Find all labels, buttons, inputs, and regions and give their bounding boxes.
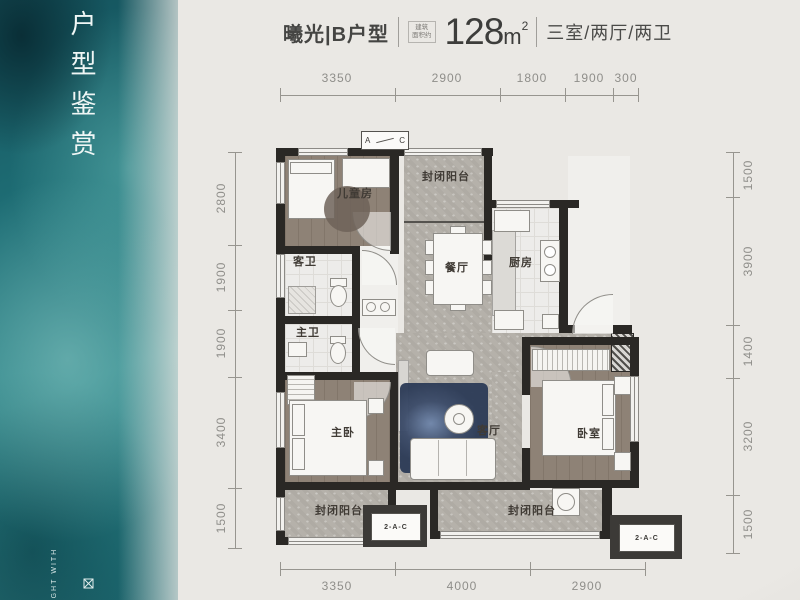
section-marker-top: A C bbox=[361, 131, 409, 150]
tick bbox=[395, 562, 396, 576]
area-note-line-1: 建筑 bbox=[412, 24, 432, 32]
dim-bottom-2: 4000 bbox=[447, 579, 478, 593]
toilet bbox=[330, 285, 347, 307]
pillow bbox=[292, 404, 305, 436]
dimension-line-top bbox=[280, 95, 638, 96]
room-label-living: 客厅 bbox=[477, 422, 501, 438]
room-label-master-bath: 主卫 bbox=[296, 324, 320, 340]
nightstand bbox=[614, 376, 631, 395]
dim-right-2: 3900 bbox=[741, 246, 755, 277]
header: 曦光|B户型 建筑 面积约 128 m 2 三室/两厅/两卫 bbox=[283, 8, 672, 56]
dim-right-4: 3200 bbox=[741, 421, 755, 452]
window bbox=[630, 376, 639, 442]
window bbox=[276, 162, 285, 204]
kitchen-sink bbox=[494, 210, 530, 232]
dimension-line-right bbox=[733, 152, 734, 553]
wall bbox=[390, 156, 399, 254]
nightstand bbox=[614, 452, 631, 471]
wall bbox=[352, 246, 360, 372]
tick bbox=[228, 548, 242, 549]
dim-top-2: 2900 bbox=[432, 71, 463, 85]
tick bbox=[726, 378, 740, 379]
plan-name: 曦光|B户型 bbox=[283, 18, 389, 47]
room-label-balcony-top: 封闭阳台 bbox=[422, 168, 470, 184]
tick bbox=[228, 377, 242, 378]
tick bbox=[280, 88, 281, 102]
wall bbox=[396, 482, 530, 490]
sidebar-footer-line-1: WITH bbox=[51, 548, 58, 574]
tick bbox=[500, 88, 501, 102]
tick bbox=[638, 88, 639, 102]
tick bbox=[228, 310, 242, 311]
floorplan-page: 户型鉴赏 LIGHT WITH 曦光|B户型 建筑 面积约 128 m 2 三室… bbox=[0, 0, 800, 600]
dimension-line-bottom bbox=[280, 569, 645, 570]
area-unit-sup: 2 bbox=[522, 19, 528, 33]
dim-bottom-3: 2900 bbox=[572, 579, 603, 593]
dim-top-3: 1800 bbox=[517, 71, 548, 85]
pillow bbox=[602, 384, 614, 416]
section-marker-bottom-right-label: 2-A-C bbox=[619, 524, 675, 552]
shower-tray bbox=[288, 286, 316, 314]
basin bbox=[380, 302, 390, 312]
area-figure: 128 m 2 bbox=[445, 11, 528, 53]
tick bbox=[565, 88, 566, 102]
nightstand bbox=[368, 398, 384, 414]
room-label-children: 儿童房 bbox=[337, 185, 373, 201]
room-label-kitchen: 厨房 bbox=[509, 254, 533, 270]
tick bbox=[280, 562, 281, 576]
window bbox=[298, 148, 348, 156]
wall bbox=[484, 208, 492, 264]
nightstand bbox=[368, 460, 384, 476]
tick bbox=[645, 562, 646, 576]
tick bbox=[228, 245, 242, 246]
room-label-guest-bath: 客卫 bbox=[293, 253, 317, 269]
tick bbox=[726, 553, 740, 554]
room-label-dining: 餐厅 bbox=[445, 259, 469, 275]
washing-machine-drum bbox=[557, 493, 575, 511]
desk bbox=[342, 158, 390, 188]
dim-top-1: 3350 bbox=[322, 71, 353, 85]
room-label-balcony-br: 封闭阳台 bbox=[508, 502, 556, 518]
dim-left-3: 1900 bbox=[214, 328, 228, 359]
dim-top-4: 1900 bbox=[574, 71, 605, 85]
tick bbox=[613, 88, 614, 102]
armchair bbox=[426, 350, 474, 376]
section-marker-top-c: C bbox=[399, 136, 405, 145]
dim-bottom-1: 3350 bbox=[322, 579, 353, 593]
window bbox=[276, 254, 285, 298]
dim-left-5: 1500 bbox=[214, 503, 228, 534]
window bbox=[276, 497, 285, 531]
washbasin bbox=[288, 342, 307, 357]
boxed-x-icon bbox=[83, 578, 94, 589]
wall bbox=[522, 480, 639, 488]
room-label-master-bed: 主卧 bbox=[331, 424, 355, 440]
wall bbox=[285, 316, 352, 324]
wall bbox=[613, 325, 632, 333]
room-label-bedroom2: 卧室 bbox=[577, 425, 601, 441]
section-marker-line bbox=[376, 138, 394, 143]
tick bbox=[228, 488, 242, 489]
area-note-box: 建筑 面积约 bbox=[408, 21, 436, 44]
tick bbox=[726, 152, 740, 153]
sofa-cushion-line bbox=[438, 440, 439, 476]
sliding-door-line bbox=[404, 221, 484, 223]
pillow bbox=[290, 162, 332, 174]
area-value: 128 bbox=[445, 11, 504, 53]
dim-right-3: 1400 bbox=[741, 336, 755, 367]
wall bbox=[522, 337, 639, 345]
dim-left-1: 2800 bbox=[214, 183, 228, 214]
area-note-line-2: 面积约 bbox=[412, 32, 432, 40]
sofa-cushion-line bbox=[466, 440, 467, 476]
tick bbox=[726, 495, 740, 496]
tick bbox=[228, 152, 242, 153]
tick bbox=[726, 197, 740, 198]
header-divider bbox=[536, 17, 537, 47]
dim-right-1: 1500 bbox=[741, 160, 755, 191]
basin bbox=[366, 302, 376, 312]
pillow bbox=[602, 418, 614, 450]
sidebar-footer-line-2: LIGHT bbox=[51, 578, 58, 600]
sidebar-vertical-title: 户型鉴赏 bbox=[64, 10, 101, 170]
wardrobe bbox=[532, 349, 610, 371]
wall bbox=[276, 482, 398, 490]
dim-left-4: 3400 bbox=[214, 417, 228, 448]
pillow bbox=[292, 438, 305, 470]
tick bbox=[530, 562, 531, 576]
area-unit: m bbox=[503, 24, 521, 50]
wall bbox=[390, 380, 398, 490]
layout-text: 三室/两厅/两卫 bbox=[546, 19, 672, 45]
sidebar-footer-text: LIGHT WITH bbox=[51, 535, 95, 600]
header-divider bbox=[398, 17, 399, 47]
tick bbox=[726, 325, 740, 326]
window bbox=[496, 200, 550, 208]
window bbox=[440, 531, 600, 539]
fridge bbox=[494, 310, 524, 330]
plant-icon bbox=[453, 413, 465, 425]
appliance bbox=[542, 314, 559, 329]
dim-right-5: 1500 bbox=[741, 509, 755, 540]
wall bbox=[522, 345, 530, 395]
dim-left-2: 1900 bbox=[214, 262, 228, 293]
dim-top-5: 300 bbox=[614, 71, 637, 85]
window bbox=[404, 148, 482, 156]
burner bbox=[544, 264, 556, 276]
window bbox=[276, 392, 285, 448]
room-floor-balcony-top bbox=[404, 156, 484, 222]
room-label-balcony-bl: 封闭阳台 bbox=[315, 502, 363, 518]
sidebar-fade bbox=[118, 0, 208, 600]
wall bbox=[559, 208, 568, 333]
tick bbox=[395, 88, 396, 102]
toilet bbox=[330, 342, 346, 364]
sofa bbox=[410, 438, 496, 480]
kitchen-counter bbox=[492, 230, 516, 316]
section-marker-top-a: A bbox=[365, 136, 370, 145]
burner bbox=[544, 246, 556, 258]
section-marker-bottom-center-label: 2-A-C bbox=[371, 513, 421, 541]
